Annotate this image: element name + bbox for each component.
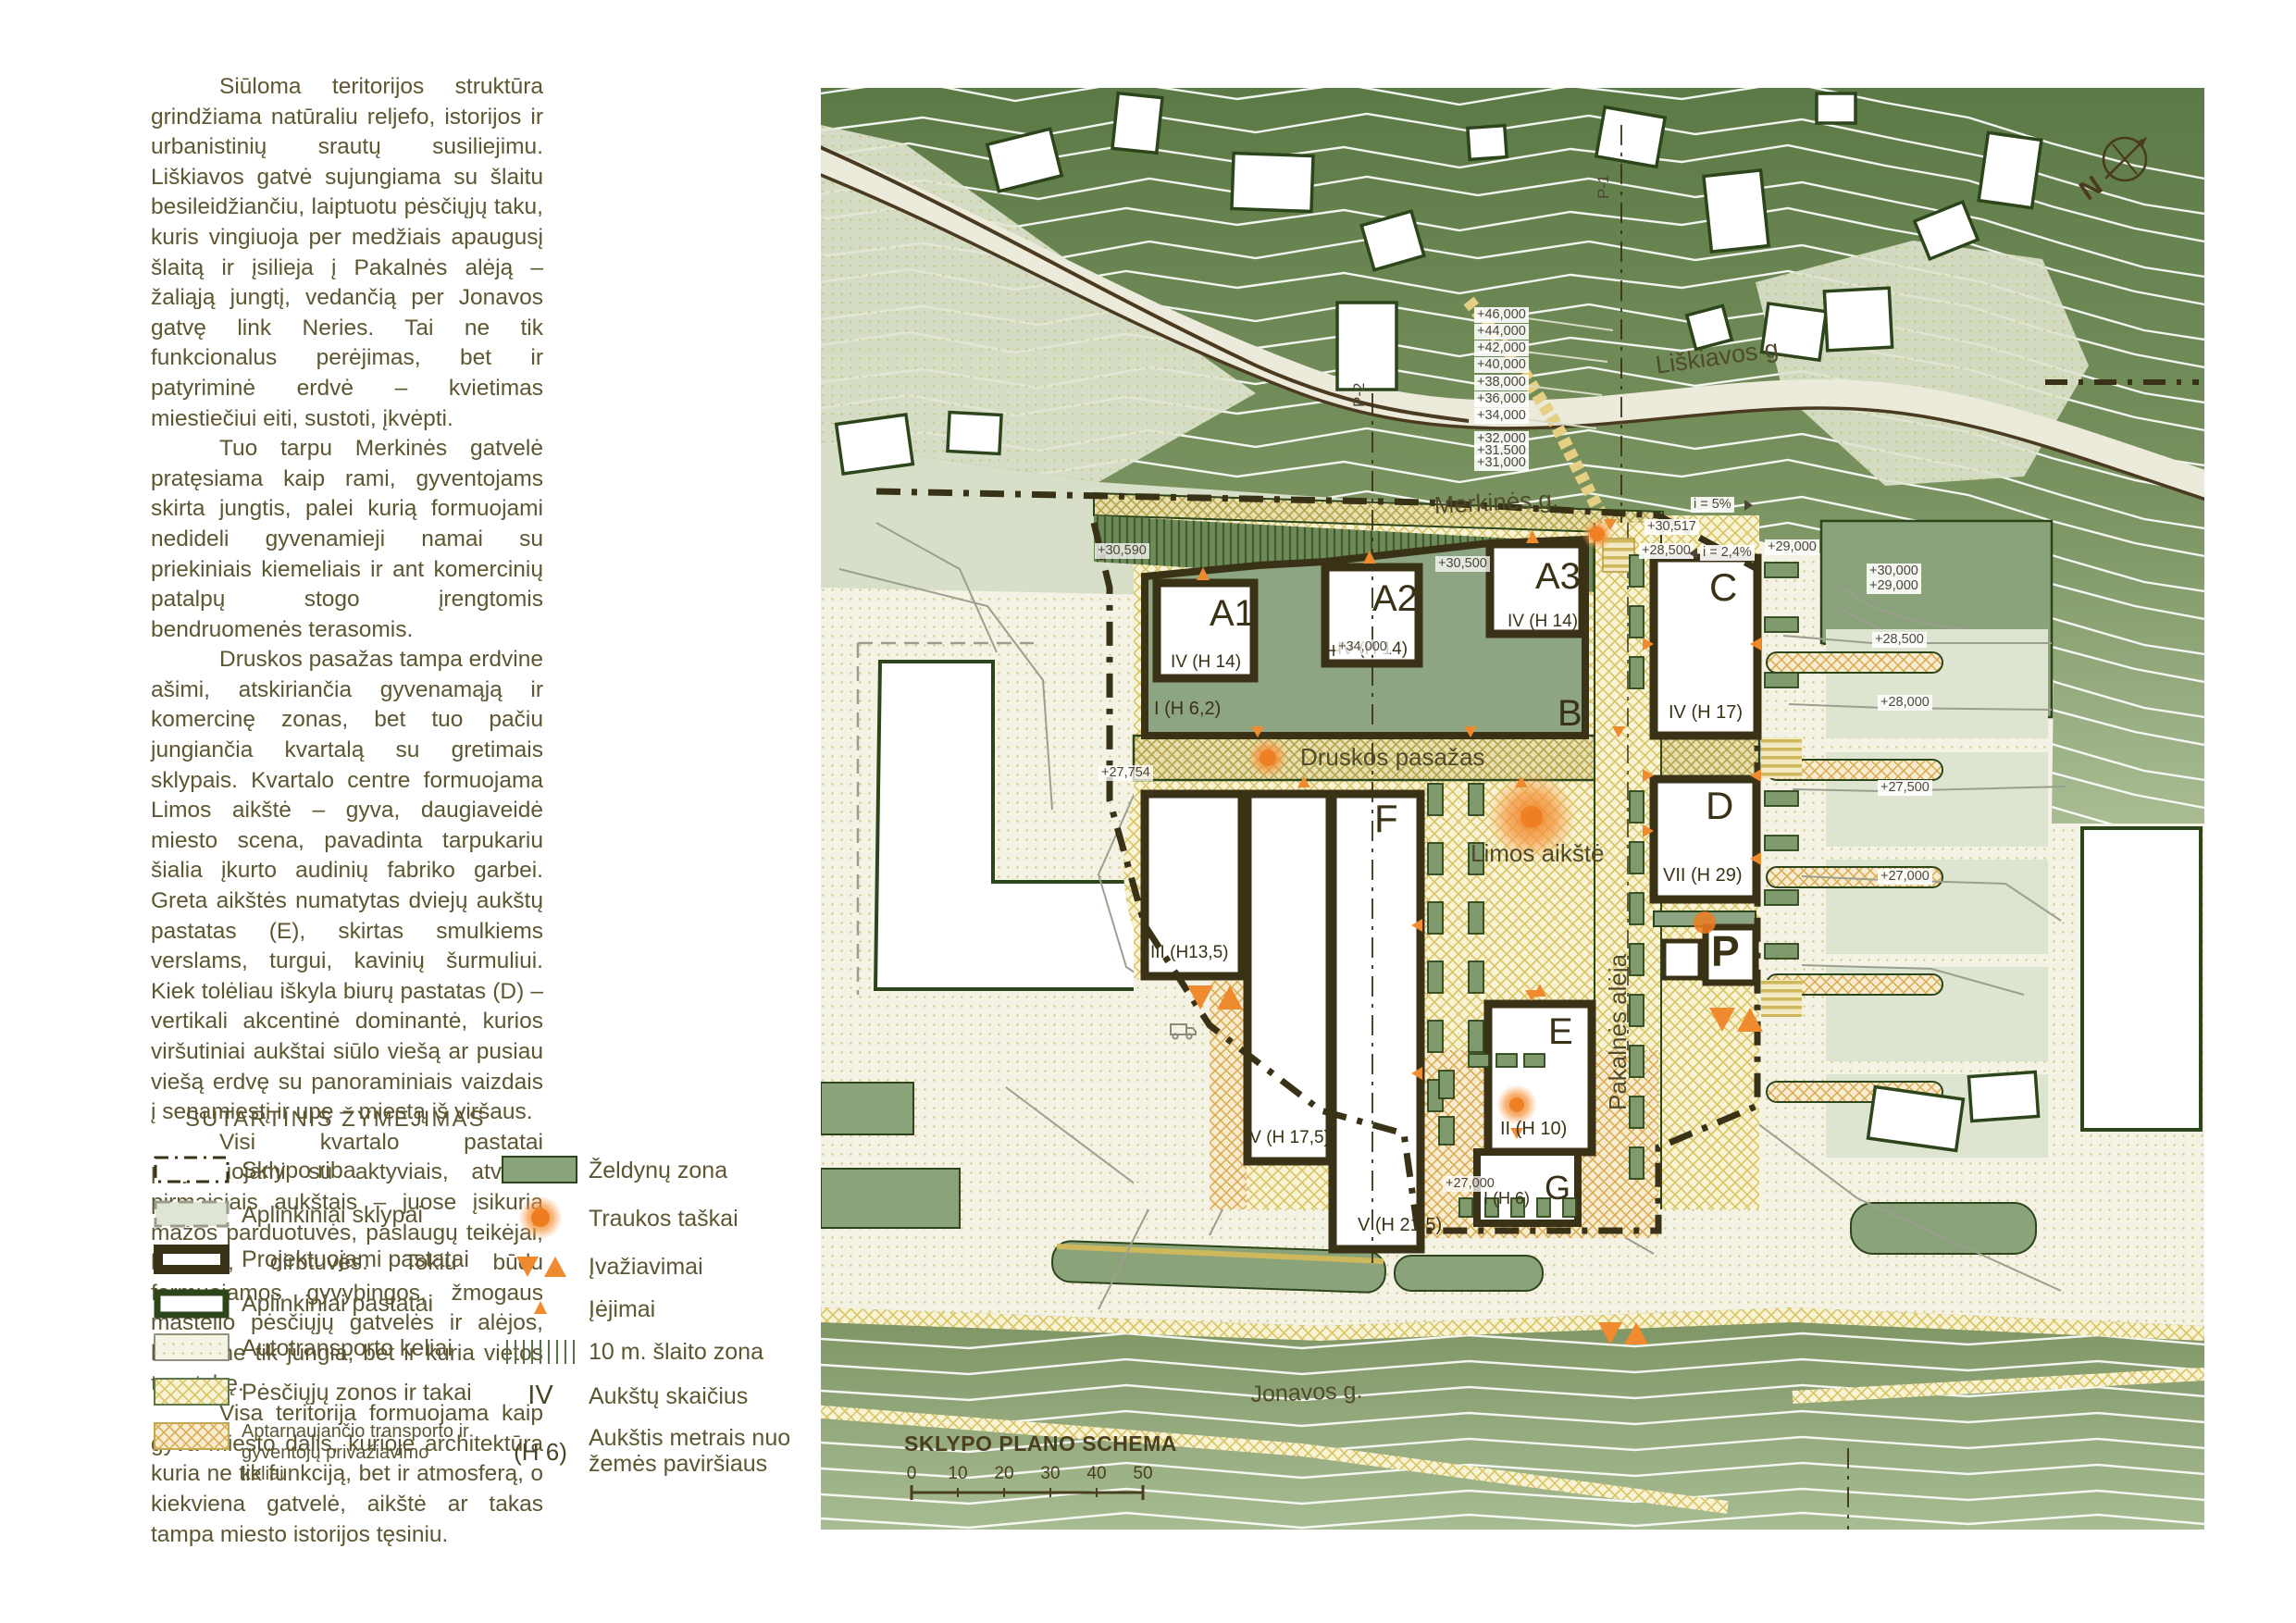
grade-chip: i = 5% bbox=[1691, 497, 1734, 513]
grade-arrow-icon bbox=[1744, 500, 1753, 511]
elevation-chip: +28,500 bbox=[1872, 632, 1927, 648]
section-label-p1: P-1 bbox=[1595, 175, 1613, 199]
building-a1-floors: IV (H 14) bbox=[1171, 652, 1241, 673]
elevation-chip: +42,000 bbox=[1474, 341, 1529, 356]
elevation-chip: +29,000 bbox=[1867, 578, 1921, 594]
adjacent-plots-swatch-icon bbox=[153, 1199, 230, 1229]
elevation-chip: +29,000 bbox=[1765, 539, 1819, 555]
street-label-druskos: Druskos pasažas bbox=[1300, 743, 1484, 772]
building-f-label: F bbox=[1374, 797, 1398, 841]
schema-title: SKLYPO PLANO SCHEMA bbox=[904, 1431, 1182, 1456]
pedestrian-zones-swatch-icon bbox=[153, 1377, 230, 1406]
building-p-label: P bbox=[1711, 926, 1740, 976]
building-f3-floors: III (H13,5) bbox=[1150, 943, 1228, 963]
building-e-label: E bbox=[1548, 1011, 1573, 1053]
service-roads-swatch-icon bbox=[153, 1421, 230, 1451]
street-label-limos: Limos aikštė bbox=[1471, 839, 1605, 868]
proposed-buildings-swatch-icon bbox=[153, 1244, 230, 1275]
elevation-chip: +31,000 bbox=[1474, 455, 1529, 471]
elevation-chip: +30,590 bbox=[1095, 543, 1149, 559]
building-a2-label: A2 bbox=[1372, 578, 1418, 620]
building-a3-label: A3 bbox=[1535, 556, 1581, 598]
elevation-chip: +46,000 bbox=[1474, 307, 1529, 323]
elevation-chip: +27,754 bbox=[1098, 765, 1153, 781]
entrance-icon bbox=[500, 1294, 581, 1321]
building-d-floors: VII (H 29) bbox=[1663, 865, 1743, 886]
elevation-chip: +34,000 bbox=[1474, 408, 1529, 424]
building-c-floors: IV (H 17) bbox=[1669, 702, 1743, 724]
section-label-p2: P-2 bbox=[1350, 383, 1369, 407]
site-plan-map: Liškiavos g. Merkinės g. Druskos pasažas… bbox=[821, 88, 2204, 1530]
site-boundary-swatch-icon bbox=[153, 1155, 230, 1184]
building-b-label: B bbox=[1558, 693, 1582, 735]
building-a3-floors: IV (H 14) bbox=[1508, 612, 1578, 632]
slope-zone-icon bbox=[500, 1336, 581, 1368]
building-a1-label: A1 bbox=[1210, 593, 1255, 635]
elevation-chip: +27,000 bbox=[1443, 1176, 1497, 1192]
elevation-chip: +30,517 bbox=[1644, 519, 1699, 535]
attraction-point-icon bbox=[500, 1194, 581, 1242]
grade-arrow-icon bbox=[1689, 548, 1697, 559]
paragraph-1: Siūloma teritorijos struktūra grindžiama… bbox=[151, 72, 543, 434]
grade-chip: i = 2,4% bbox=[1700, 545, 1755, 561]
street-label-jonavos: Jonavos g. bbox=[1250, 1378, 1363, 1408]
paragraph-3: Druskos pasažas tampa erdvine ašimi, ats… bbox=[151, 645, 543, 1128]
elevation-chip: +27,500 bbox=[1878, 780, 1932, 796]
elevation-chip: +36,000 bbox=[1474, 391, 1529, 407]
building-c-label: C bbox=[1709, 565, 1737, 610]
building-d-label: D bbox=[1706, 784, 1733, 828]
elevation-chip: +44,000 bbox=[1474, 324, 1529, 340]
building-b-floors: I (H 6,2) bbox=[1154, 699, 1221, 720]
schema-title-block: SKLYPO PLANO SCHEMA 0 10 20 30 40 50 bbox=[904, 1431, 1182, 1507]
building-e-floors: II (H 10) bbox=[1500, 1119, 1567, 1140]
building-g-floors: I (H 6) bbox=[1483, 1189, 1530, 1208]
car-roads-swatch-icon bbox=[153, 1332, 230, 1362]
presentation-board: Siūloma teritorijos struktūra grindžiama… bbox=[0, 0, 2296, 1623]
site-plan-graphics bbox=[821, 88, 2204, 1530]
scale-bar bbox=[904, 1484, 1154, 1503]
street-label-pakalnes: Pakalnės alėja bbox=[1604, 954, 1632, 1110]
elevation-chip: +40,000 bbox=[1474, 357, 1529, 373]
elevation-chip: +34,000 bbox=[1335, 639, 1390, 655]
legend-title: SUTARTINIS ŽYMĖJIMAS bbox=[185, 1107, 485, 1133]
building-f2-floors: IV (H 17,5) bbox=[1245, 1128, 1330, 1148]
elevation-chip: +38,000 bbox=[1474, 375, 1529, 390]
building-f-floors: V (H 21,5) bbox=[1358, 1215, 1442, 1236]
green-zone-swatch-icon bbox=[500, 1155, 581, 1184]
description-column: Siūloma teritorijos struktūra grindžiama… bbox=[151, 72, 543, 1550]
building-g-label: G bbox=[1545, 1169, 1570, 1208]
elevation-chip: +28,000 bbox=[1878, 695, 1932, 711]
elevation-chip: +30,000 bbox=[1867, 564, 1921, 579]
paragraph-2: Tuo tarpu Merkinės gatvelė pratęsiama ka… bbox=[151, 434, 543, 645]
elevation-chip: +27,000 bbox=[1878, 869, 1932, 885]
existing-buildings-swatch-icon bbox=[153, 1288, 230, 1319]
scale-numbers: 0 10 20 30 40 50 bbox=[904, 1464, 1182, 1484]
elevation-chip: +30,500 bbox=[1435, 556, 1490, 572]
elevation-chip: +28,500 bbox=[1639, 543, 1694, 559]
vehicle-entrance-icon bbox=[500, 1251, 581, 1281]
